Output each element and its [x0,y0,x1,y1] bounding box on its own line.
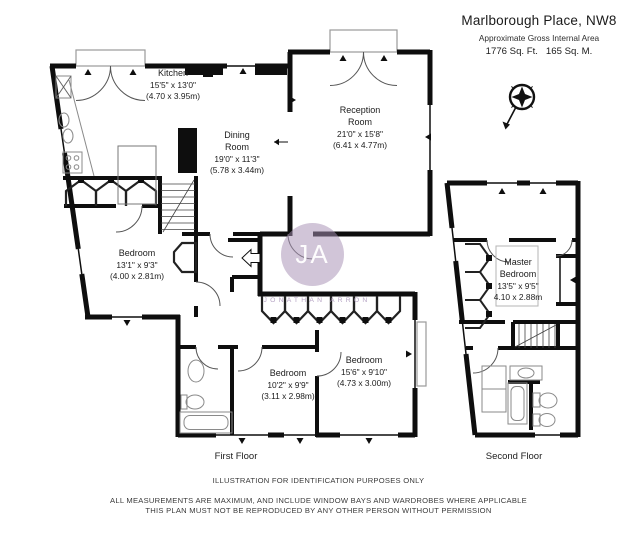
watermark-initials: JA [295,239,329,270]
area-subtitle: Approximate Gross Internal Area [448,33,630,43]
bathroom-fixtures [482,366,557,427]
room-label-reception-room: Reception Room 21'0" x 15'8" (6.41 x 4.7… [305,105,415,151]
disclaimer-line-1: ILLUSTRATION FOR IDENTIFICATION PURPOSES… [0,476,637,485]
disclaimer-line-2: ALL MEASUREMENTS ARE MAXIMUM, AND INCLUD… [0,496,637,505]
floor-plan-page: JA JONATHAN ARRON Marlborough Place, NW8… [0,0,637,535]
room-label-bedroom-1: Bedroom 13'1" x 9'3" (4.00 x 2.81m) [82,248,192,282]
compass-icon [503,85,535,130]
room-label-dining-room: Dining Room 19'0" x 11'3" (5.78 x 3.44m) [182,130,292,176]
second-floor-plan [447,181,578,437]
wardrobe-rails [271,317,392,323]
stairs-icon [515,324,556,348]
outer-walls [447,181,578,437]
watermark-name: JONATHAN ARRON [252,297,382,304]
title-block: Marlborough Place, NW8 Approximate Gross… [448,13,630,57]
floor-label-second: Second Floor [454,451,574,462]
window-ticks [499,188,506,194]
watermark-logo: JA [281,223,344,286]
floor-label-first: First Floor [176,451,296,462]
bathroom-fixtures [180,360,232,433]
area-value: 1776 Sq. Ft. 165 Sq. M. [448,46,630,57]
sink-icon [188,360,204,382]
room-label-bedroom-3: Bedroom 15'6" x 9'10" (4.73 x 3.00m) [309,355,419,389]
window-ticks [540,188,547,194]
room-label-master-bedroom: Master Bedroom 13'5" x 9'5" 4.10 x 2.88m [463,257,573,303]
page-title: Marlborough Place, NW8 [448,13,630,28]
stairs-icon [161,180,195,232]
disclaimer-line-3: THIS PLAN MUST NOT BE REPRODUCED BY ANY … [0,506,637,515]
room-label-kitchen: Kitchen 15'5" x 13'0" (4.70 x 3.95m) [118,68,228,102]
wardrobes-row [66,180,156,206]
